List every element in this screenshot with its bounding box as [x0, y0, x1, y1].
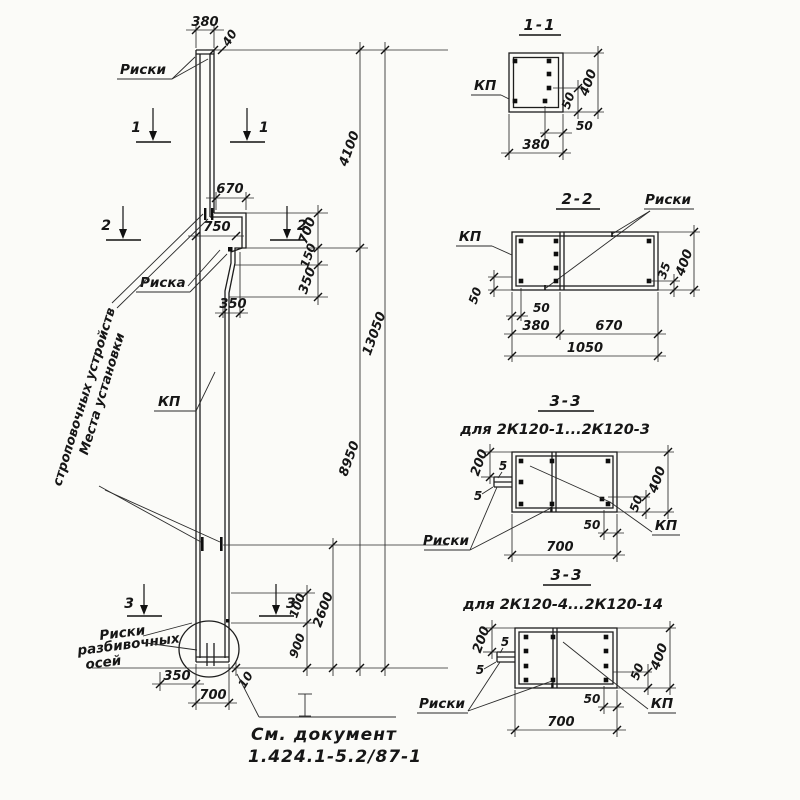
note-line1: См. документ: [251, 725, 397, 745]
label-layout-axes: Риски разбивочных осей: [76, 622, 197, 673]
dim-console-width2: 750: [203, 220, 230, 235]
section-mark-3-right: 3: [259, 584, 296, 616]
dim-height: 400: [673, 247, 697, 279]
section-2-2: 2-2 Риски КП: [456, 190, 700, 362]
dim-top-width: 380: [191, 15, 218, 30]
dim-total: 1050: [567, 341, 603, 356]
elevation-view: 380 40 670 750 350 700 150 350 4100 8950…: [50, 15, 448, 767]
note-line2: 1.424.1-5.2/87-1: [248, 747, 422, 767]
dim-bar-offset: 50: [584, 692, 601, 706]
section-mark-3-left: 3: [124, 584, 162, 616]
strop-marks: [201, 208, 233, 623]
svg-text:КП: КП: [474, 78, 497, 94]
dim-lower-height: 8950: [336, 439, 362, 478]
section-title: 3-3: [549, 392, 582, 410]
dim-ticks-s33b: [488, 624, 674, 734]
dim-plate2: 5: [474, 489, 482, 503]
label-kp-s22: КП: [456, 229, 512, 255]
section-mark-label: 1: [131, 120, 141, 136]
dim-width: 700: [546, 540, 573, 555]
section-mark-1-right: 1: [230, 108, 269, 142]
section-3-3-a: 3-3 для 2К120-1...2К120-3: [423, 392, 680, 562]
dim-side-offset: 50: [559, 90, 578, 110]
dim-console-h3: 350: [296, 265, 319, 296]
dim-ticks-s11: [505, 49, 602, 157]
svg-text:Риска: Риска: [140, 275, 186, 291]
dim-bottom-w1: 350: [163, 669, 190, 684]
dim-top-offset: 200: [468, 447, 491, 478]
svg-text:КП: КП: [655, 518, 678, 534]
dim-height: 400: [648, 641, 672, 673]
svg-text:осей: осей: [85, 653, 123, 673]
section-mark-label: 3: [124, 596, 134, 612]
section-mark-label: 3: [286, 596, 296, 612]
svg-text:КП: КП: [651, 696, 674, 712]
section-3-3-b: 3-3 для 2К120-4...2К120-14: [417, 566, 676, 737]
dim-upper-height: 4100: [336, 129, 363, 169]
label-strop-places: Места установки строповочных устройств: [50, 214, 220, 542]
drawing-canvas: 380 40 670 750 350 700 150 350 4100 8950…: [0, 0, 800, 800]
roman-one-mark: [298, 694, 312, 716]
section-mark-label: 2: [297, 218, 307, 234]
section-title: 2-2: [561, 190, 594, 208]
dim-bar-offset: 50: [584, 518, 601, 532]
svg-text:Риски: Риски: [419, 696, 466, 712]
dim-console-width: 670: [216, 182, 243, 197]
dim-height: 400: [577, 67, 601, 99]
label-riski-top: Риски: [117, 57, 208, 79]
section-subtitle: для 2К120-4...2К120-14: [462, 597, 663, 613]
dim-plate2: 5: [476, 663, 484, 677]
dim-width: 700: [547, 715, 574, 730]
label-kp-s11: КП: [471, 78, 509, 99]
section-mark-label: 2: [101, 218, 111, 234]
dim-ticks-s33a: [486, 448, 672, 559]
dim-console-h2: 150: [297, 241, 319, 269]
rebar-dots: [513, 59, 552, 104]
rebar-dots: [519, 239, 652, 284]
dim-top-offset: 40: [219, 27, 240, 49]
dim-width: 380: [522, 138, 549, 153]
dim-top-offset: 200: [470, 624, 493, 655]
svg-text:Риски: Риски: [423, 533, 470, 549]
section-mark-2-left: 2: [101, 206, 141, 240]
dim-ticks-elevation: [156, 26, 389, 707]
dim-console-slope: 350: [219, 297, 246, 312]
dim-side-offset: 50: [627, 493, 646, 513]
label-riski-s33a: Риски: [423, 487, 551, 550]
svg-text:КП: КП: [158, 394, 181, 410]
svg-text:КП: КП: [459, 229, 482, 245]
dim-bottom-h2: 900: [286, 631, 308, 659]
label-kp-elevation: КП: [154, 372, 215, 411]
svg-text:Риски: Риски: [120, 62, 167, 78]
dim-bar-offset: 50: [533, 301, 550, 315]
dim-plate1: 5: [501, 635, 509, 649]
svg-text:Риски: Риски: [645, 192, 692, 208]
section-mark-1-left: 1: [131, 108, 171, 142]
dim-plate1: 5: [499, 459, 507, 473]
label-riska: Риска: [136, 250, 227, 292]
technical-drawing-page: 380 40 670 750 350 700 150 350 4100 8950…: [0, 0, 800, 800]
dim-left-offset: 50: [466, 285, 485, 305]
column-outline: [179, 50, 246, 677]
dim-bottom-gap: 10: [235, 669, 256, 691]
dim-side-offset: 50: [628, 661, 647, 681]
section-title: 3-3: [550, 566, 583, 584]
dim-height: 400: [646, 464, 670, 496]
see-document-note: См. документ 1.424.1-5.2/87-1: [237, 674, 422, 767]
rebar-dots: [519, 459, 611, 507]
dim-seg2: 670: [595, 319, 622, 334]
section-mark-label: 1: [259, 120, 269, 136]
section-subtitle: для 2К120-1...2К120-3: [459, 422, 650, 438]
section-title: 1-1: [523, 16, 556, 34]
dim-bottom-w2: 700: [199, 688, 226, 703]
dim-bar-offset: 50: [576, 119, 593, 133]
section-1-1: 1-1 КП 50 380 50 400: [471, 16, 604, 160]
dim-seg1: 380: [522, 319, 549, 334]
rebar-dots: [524, 635, 609, 683]
